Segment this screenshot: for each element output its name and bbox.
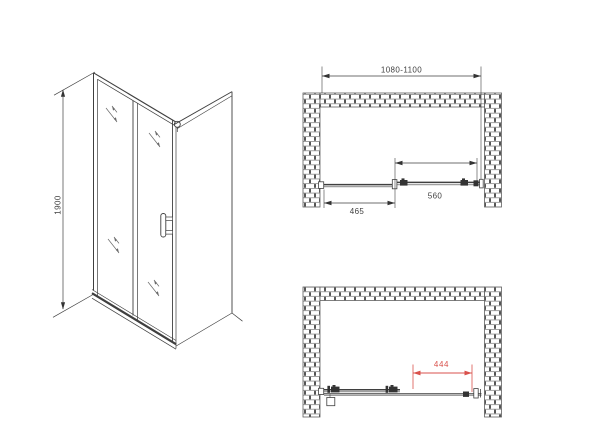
roller-tab <box>462 178 465 180</box>
wall-bracket <box>327 398 335 406</box>
side-panel-top-outer <box>175 92 233 125</box>
arrow-right-icon <box>388 201 396 206</box>
roller-block <box>461 180 469 186</box>
sliding-panel-dimension-label: 560 <box>428 192 443 201</box>
arrow-right-icon <box>465 371 473 376</box>
bottom-track-base <box>92 298 176 349</box>
arrow-left-icon <box>324 201 332 206</box>
wall-profile-right <box>480 179 484 188</box>
arrow-left-icon <box>413 371 421 376</box>
isometric-view: 1900 <box>53 72 243 349</box>
right-wall <box>485 93 502 207</box>
overall-width-dimension-label: 1080-1100 <box>381 66 422 75</box>
side-panel-bottom-edge <box>176 313 232 346</box>
roller-tab <box>333 385 336 387</box>
wall-profile-right <box>474 389 478 398</box>
height-dimension-label: 1900 <box>54 195 63 215</box>
door-frame <box>92 73 180 349</box>
roller-tab <box>391 385 394 387</box>
door-assembly-open <box>319 385 482 406</box>
drawing-svg: 1900 <box>0 0 600 424</box>
bottom-track-top <box>92 290 176 341</box>
dimension-extension-line <box>53 294 94 317</box>
roller-tab <box>402 178 405 180</box>
glass-reflection-icon <box>149 131 160 147</box>
side-panel-top-inner <box>177 96 232 129</box>
end-cap <box>327 386 330 393</box>
frame-top-inner <box>98 79 177 126</box>
handle-stem-top <box>166 217 173 221</box>
overall-width-dimension: 1080-1100 <box>322 66 481 185</box>
glass-reflection-icon <box>106 106 117 122</box>
handle-bar <box>161 214 166 238</box>
roller-block <box>400 180 408 186</box>
roller-block <box>331 387 340 393</box>
side-panel <box>175 92 243 346</box>
frame-top-outer <box>94 73 177 123</box>
technical-drawing-canvas: 1900 <box>0 0 600 424</box>
arrow-left-icon <box>395 161 403 166</box>
right-wall <box>485 287 502 417</box>
top-view-door-open: 444 <box>303 287 502 417</box>
top-view-door-closed: 1080-1100 560 <box>303 66 502 217</box>
opening-dimension-label: 444 <box>434 360 449 369</box>
back-wall <box>320 287 485 301</box>
fixed-panel-dimension: 465 <box>324 190 395 217</box>
dimension-extension-line <box>54 72 95 95</box>
walls <box>303 93 502 207</box>
clear-opening-dimension: 444 <box>413 360 472 392</box>
arrow-right-icon <box>470 161 478 166</box>
back-wall <box>320 93 485 107</box>
bottom-track-rail <box>92 293 176 344</box>
left-wall <box>303 93 320 207</box>
fixed-panel-dimension-label: 465 <box>350 207 365 216</box>
height-dimension: 1900 <box>53 72 95 317</box>
left-wall <box>303 287 320 417</box>
wall-profile-left <box>319 182 324 189</box>
handle-stem-bottom <box>166 231 173 235</box>
glass-reflection-icon <box>108 237 119 253</box>
roller-block <box>389 387 398 393</box>
wall-profile-left <box>319 388 324 394</box>
end-block <box>463 392 469 397</box>
door-handle <box>161 214 173 238</box>
end-block <box>474 180 479 186</box>
floor-tick <box>232 313 243 321</box>
arrow-left-icon <box>322 74 330 79</box>
glass-reflection-icon <box>148 280 159 296</box>
overlap-profile <box>392 180 397 189</box>
end-cap <box>386 386 389 393</box>
door-assembly-closed <box>319 178 484 188</box>
arrow-right-icon <box>474 74 482 79</box>
arrow-down-icon <box>61 302 65 309</box>
